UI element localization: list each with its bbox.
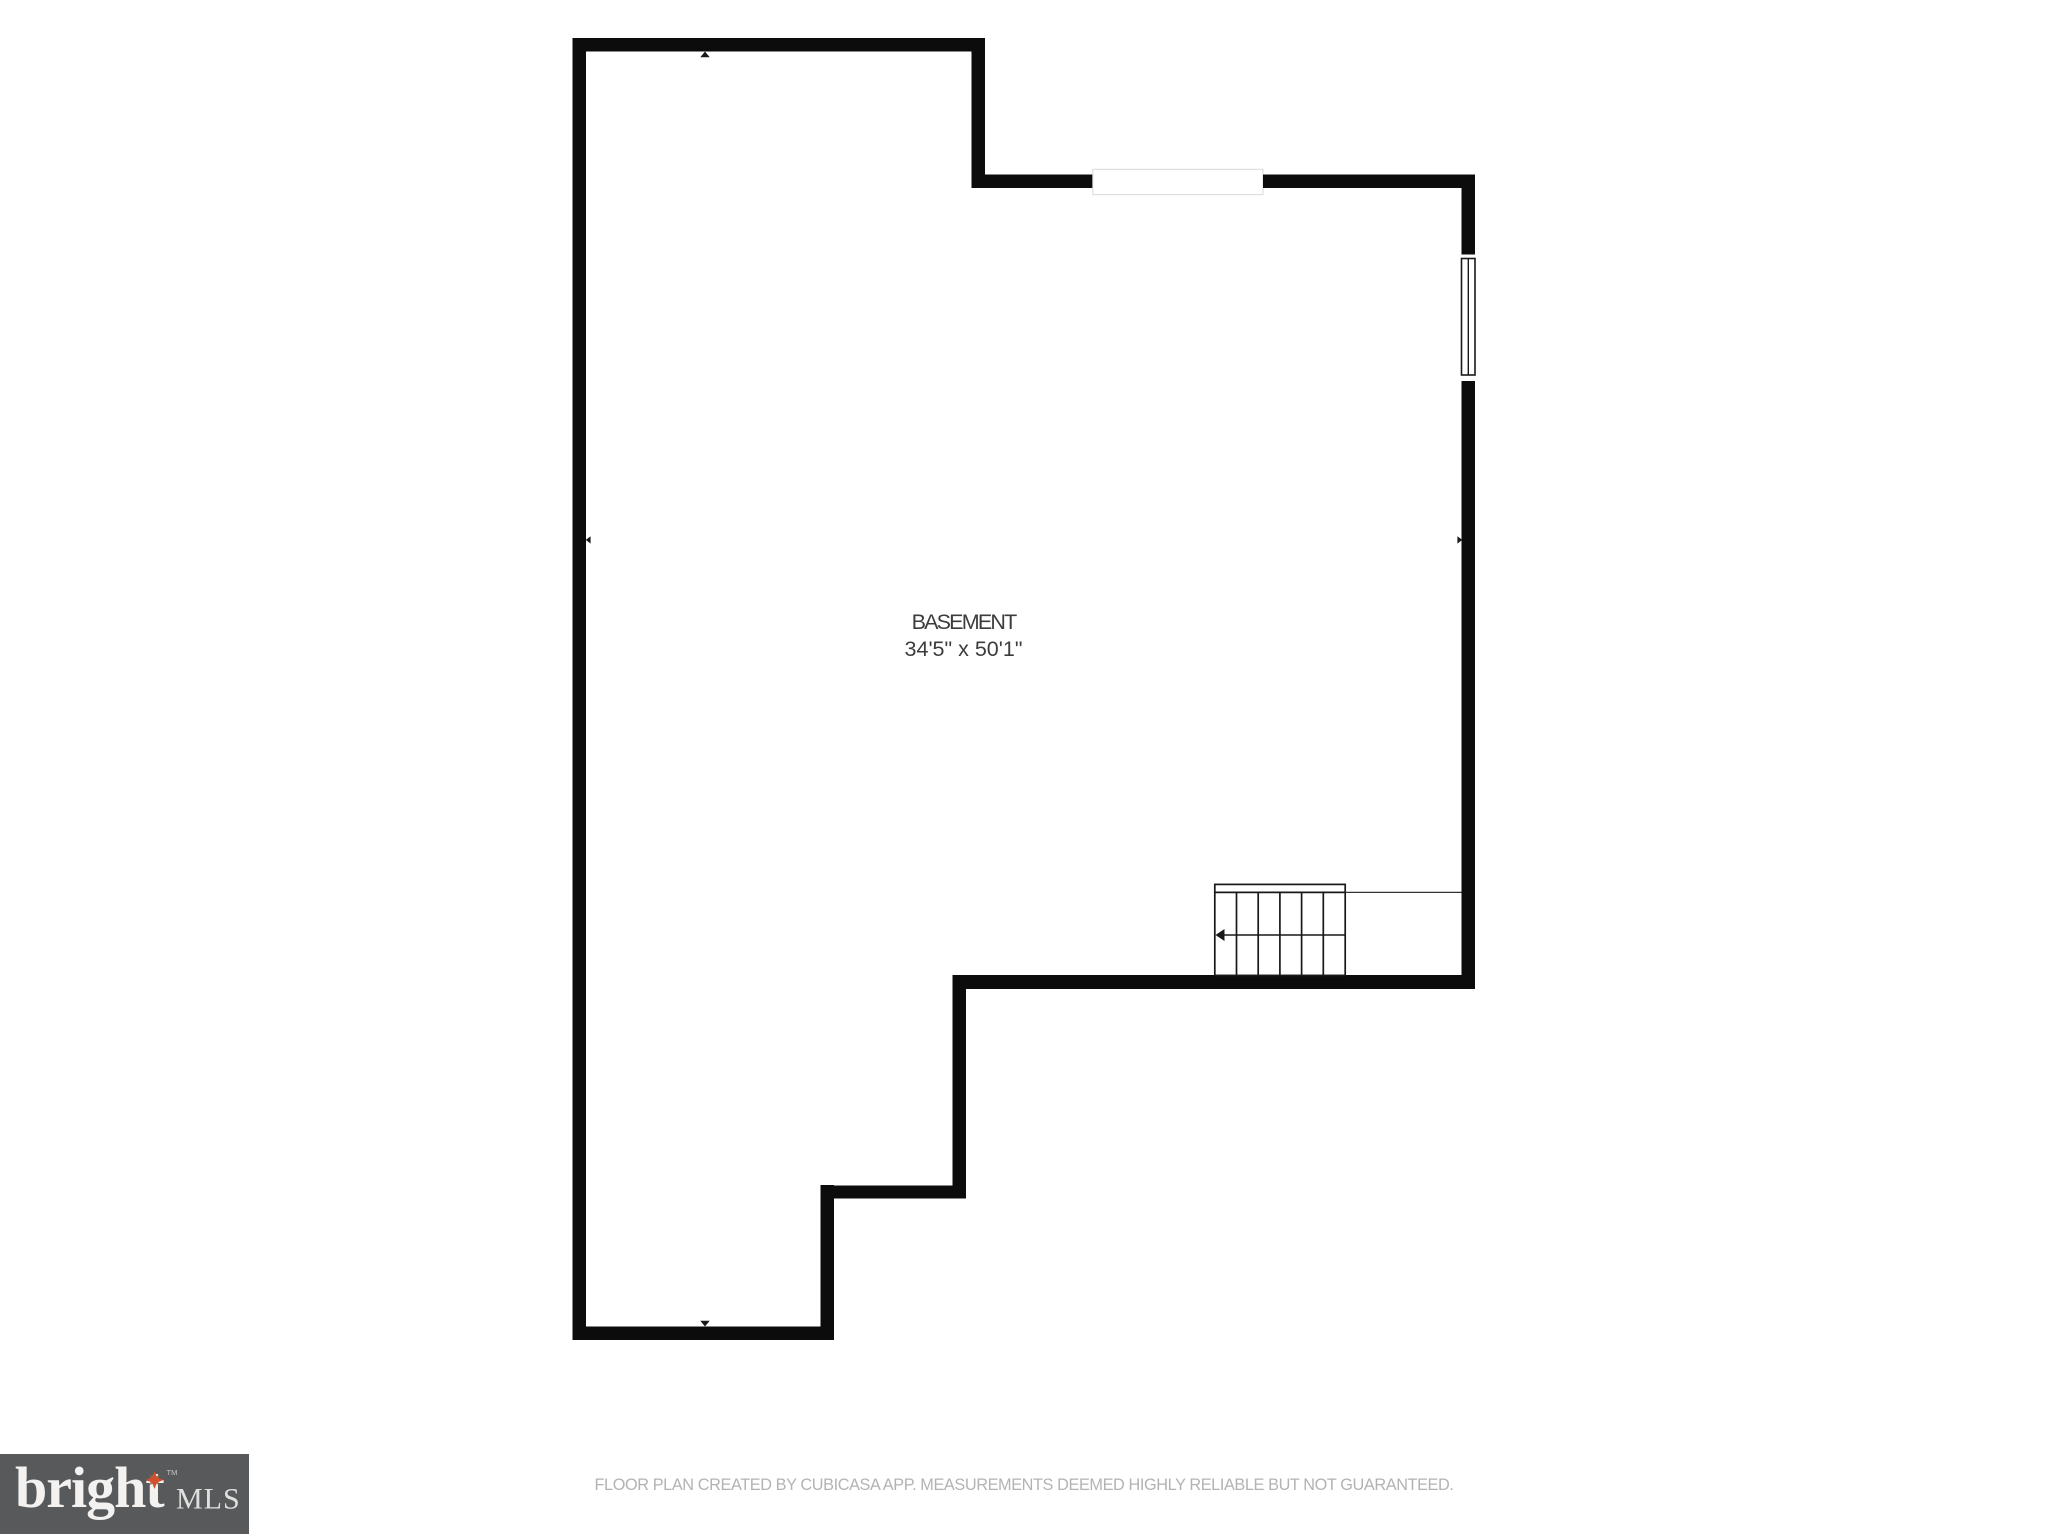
svg-text:34'5" x 50'1": 34'5" x 50'1" xyxy=(905,637,1023,661)
svg-text:TM: TM xyxy=(167,1468,178,1477)
svg-text:bright: bright xyxy=(15,1455,165,1520)
svg-text:BASEMENT: BASEMENT xyxy=(912,610,1018,634)
svg-text:FLOOR PLAN CREATED BY CUBICASA: FLOOR PLAN CREATED BY CUBICASA APP. MEAS… xyxy=(595,1476,1454,1494)
svg-text:MLS: MLS xyxy=(176,1483,241,1516)
